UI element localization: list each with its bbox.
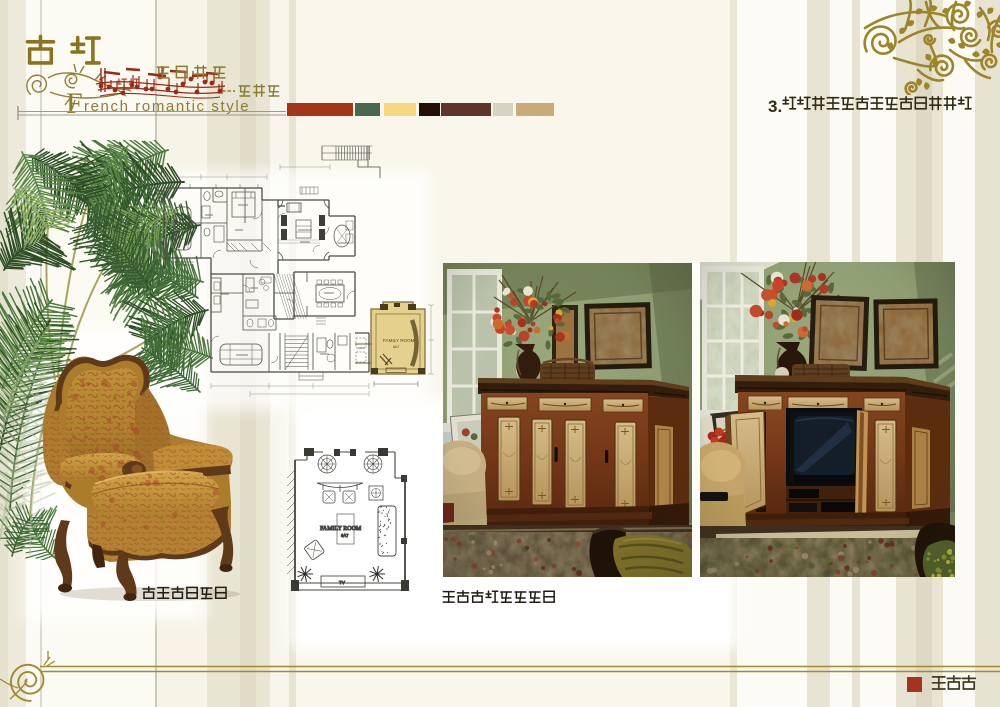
svg-text:TV: TV — [339, 580, 346, 585]
svg-text:6A7: 6A7 — [393, 345, 399, 349]
svg-text:rench romantic style: rench romantic style — [84, 98, 250, 115]
svg-text:FAMILY ROOM: FAMILY ROOM — [383, 338, 415, 343]
svg-text:3.: 3. — [768, 97, 782, 116]
svg-text:6A7: 6A7 — [341, 533, 349, 538]
svg-text:FAMILY ROOM: FAMILY ROOM — [320, 526, 362, 532]
